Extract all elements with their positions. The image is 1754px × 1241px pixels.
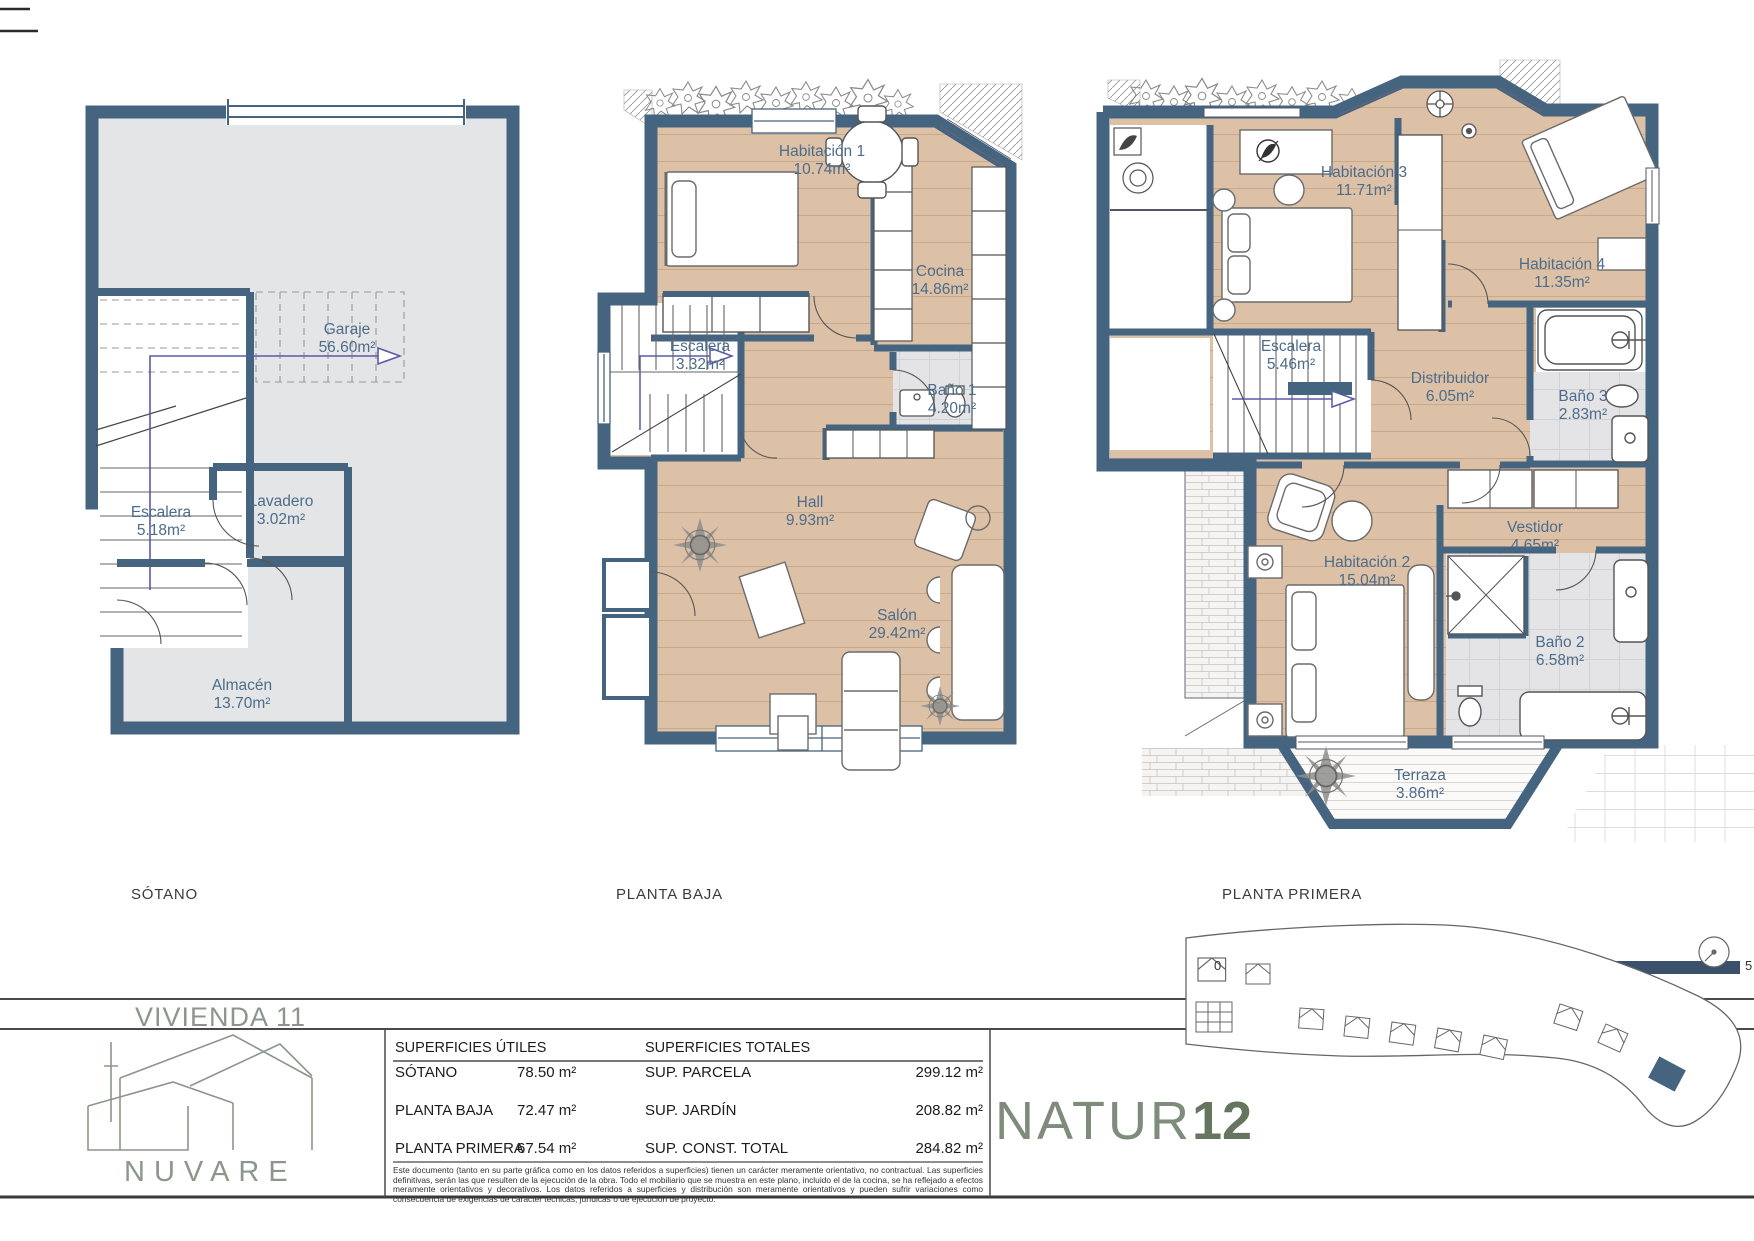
bed-icon (666, 172, 798, 266)
room-label-garaje: Garaje 56.60m² (319, 321, 376, 357)
site-grid-building (1196, 1002, 1232, 1032)
wardrobe (663, 294, 809, 332)
floor-label-planta-baja: PLANTA BAJA (616, 886, 723, 903)
exterior-paving (1560, 745, 1754, 842)
nuvare-logo-art (88, 1035, 312, 1150)
natur12-logo: NATUR12 (995, 1090, 1252, 1152)
room-label-almacen: Almacén 13.70m² (212, 677, 272, 713)
row-value: 67.54 m² (517, 1140, 576, 1157)
room-label-cocina: Cocina 14.86m² (912, 263, 969, 299)
floor-label-sotano: SÓTANO (131, 886, 198, 903)
row-label: SUP. PARCELA (645, 1064, 751, 1081)
table-header-utiles: SUPERFICIES ÚTILES (395, 1040, 546, 1056)
room-label-escalera-pb: Escalera 3.32m² (670, 338, 730, 374)
entry-porch (604, 560, 651, 698)
natur-number: 12 (1192, 1091, 1252, 1151)
scale-min-label: 0 (1214, 958, 1221, 973)
room-label-habitacion2: Habitación 2 15.04m² (1324, 554, 1410, 590)
garage-door (226, 99, 466, 125)
sotano-floorplan (92, 99, 513, 728)
room-label-hall: Hall 9.93m² (786, 494, 834, 530)
legal-disclaimer: Este documento (tanto en su parte gráfic… (393, 1166, 983, 1205)
room-label-habitacion4: Habitación 4 11.35m² (1519, 256, 1605, 292)
nuvare-logo-text: NUVARE (124, 1156, 297, 1189)
room-label-bano1: Baño 1 4.20m² (927, 382, 976, 418)
plan-sheet: SÓTANO PLANTA BAJA PLANTA PRIMERA Garaje… (0, 0, 1754, 1241)
planta-baja-floorplan (598, 80, 1022, 770)
room-label-escalera-pp: Escalera 5.46m² (1261, 338, 1321, 374)
room-label-bano3: Baño 3 2.83m² (1558, 388, 1607, 424)
row-label: SUP. JARDÍN (645, 1102, 736, 1119)
page-corner-marks (0, 9, 38, 31)
room-label-salon: Salón 29.42m² (869, 607, 926, 643)
landing-floor (1110, 338, 1210, 450)
site-plan-map (1186, 924, 1741, 1126)
scale-max-label: 5 (1745, 958, 1752, 973)
room-label-bano2: Baño 2 6.58m² (1535, 634, 1584, 670)
row-value: 284.82 m² (853, 1140, 983, 1157)
utility-floor (1110, 125, 1210, 330)
room-area: 56.60m² (319, 339, 376, 357)
natur-text: NATUR (995, 1091, 1192, 1151)
room-name: Garaje (319, 321, 376, 339)
planta-primera-floorplan (1103, 60, 1754, 842)
room-label-escalera-s: Escalera 5.18m² (131, 504, 191, 540)
table-header-totales: SUPERFICIES TOTALES (645, 1040, 810, 1056)
row-label: SÓTANO (395, 1064, 457, 1081)
row-label: PLANTA BAJA (395, 1102, 493, 1119)
room-label-vestidor: Vestidor 4.65m² (1507, 519, 1563, 555)
row-value: 78.50 m² (517, 1064, 576, 1081)
row-label: PLANTA PRIMERA (395, 1140, 524, 1157)
room-label-terraza: Terraza 3.86m² (1394, 767, 1446, 803)
sheet-title: VIVIENDA 11 (135, 1002, 306, 1033)
room-label-habitacion3: Habitación 3 11.71m² (1321, 164, 1407, 200)
compass-icon (1699, 937, 1729, 967)
row-label: SUP. CONST. TOTAL (645, 1140, 788, 1157)
room-label-habitacion1: Habitación 1 10.74m² (779, 143, 865, 179)
hall-closet (826, 430, 934, 458)
row-value: 208.82 m² (853, 1102, 983, 1119)
row-value: 299.12 m² (853, 1064, 983, 1081)
row-value: 72.47 m² (517, 1102, 576, 1119)
room-label-lavadero: Lavadero 3.02m² (249, 493, 314, 529)
room-label-distribuidor: Distribuidor 6.05m² (1411, 370, 1489, 406)
floor-label-planta-primera: PLANTA PRIMERA (1222, 886, 1362, 903)
